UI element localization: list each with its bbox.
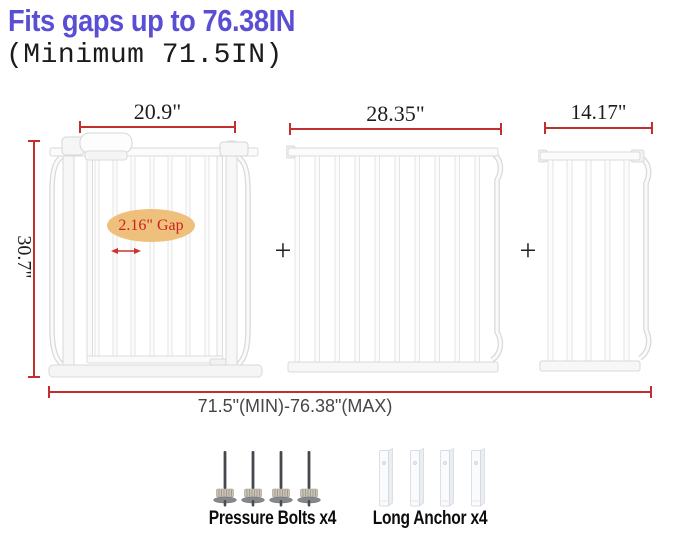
gate-width-label: 20.9" bbox=[79, 99, 236, 125]
height-label: 30.7" bbox=[13, 222, 35, 292]
extension-panel-narrow-illustration bbox=[538, 145, 656, 373]
gap-arrow-icon bbox=[111, 246, 141, 256]
extension-wide-width-dimension-line bbox=[289, 128, 502, 130]
pressure-bolts-label: Pressure Bolts x4 bbox=[201, 508, 345, 530]
page-subtitle: (Minimum 71.5IN) bbox=[6, 40, 283, 71]
extension-narrow-width-dimension-line bbox=[544, 127, 653, 129]
extension-narrow-width-label: 14.17" bbox=[544, 100, 653, 125]
pressure-bolts-icon bbox=[212, 450, 332, 508]
total-width-dimension-line bbox=[48, 391, 652, 393]
product-dimension-diagram: Fits gaps up to 76.38IN (Minimum 71.5IN)… bbox=[0, 0, 679, 536]
gate-width-dimension-line bbox=[79, 126, 236, 128]
page-title: Fits gaps up to 76.38IN bbox=[8, 3, 295, 39]
gap-callout: 2.16" Gap bbox=[107, 209, 195, 242]
extension-panel-wide-illustration bbox=[286, 140, 506, 378]
total-width-label: 71.5"(MIN)-76.38"(MAX) bbox=[95, 396, 495, 417]
long-anchors-icon bbox=[378, 448, 488, 508]
walk-through-gate-illustration bbox=[38, 130, 273, 380]
extension-wide-width-label: 28.35" bbox=[289, 101, 502, 127]
long-anchor-label: Long Anchor x4 bbox=[360, 508, 499, 530]
